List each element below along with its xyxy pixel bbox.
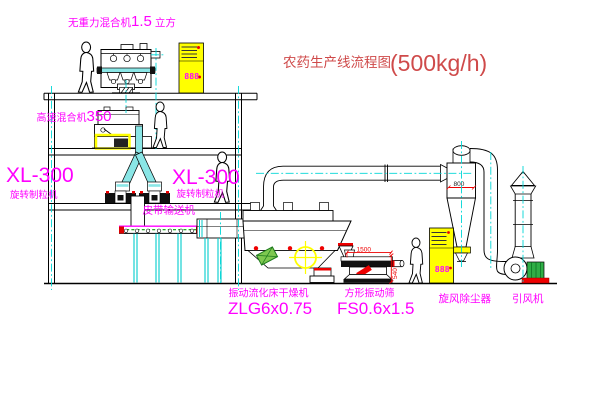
vibrating-sieve: 1500 540: [341, 247, 404, 284]
fan-suction-pipe: [470, 149, 510, 275]
sieve-model: FS0.6x1.5: [337, 299, 415, 318]
mixer2-motor: [114, 139, 128, 148]
page-title-capacity: (500kg/h): [390, 50, 487, 76]
belt-conveyor: [119, 226, 201, 282]
gravity-free-mixer: [97, 44, 160, 94]
conveyor-legs: [134, 234, 181, 283]
granulator-center-name: 旋转制粒机: [177, 188, 225, 200]
cabinet-indicator-light: [197, 46, 200, 49]
dryer-label: 振动流化床干燥机: [229, 287, 309, 300]
control-cabinet-dryer: 888: [430, 228, 454, 283]
induced-draft-fan: [504, 257, 549, 283]
control-cabinet-top: 888: [179, 43, 204, 93]
top-slab: [44, 93, 257, 100]
sieve-label: 方形振动筛: [345, 287, 395, 300]
page-title: 农药生产线流程图: [283, 55, 391, 70]
fan-base: [522, 278, 549, 283]
diagram-canvas: 888: [0, 0, 600, 403]
cabinet-display: 888: [435, 265, 450, 274]
sieve-height-text: 540: [392, 268, 399, 279]
cabinet-display: 888: [185, 72, 200, 81]
granulator-left-name: 旋转制粒机: [10, 189, 58, 201]
second-floor-slab: [48, 149, 242, 156]
mixer2-label: 高速混合机350: [37, 108, 112, 125]
conveyor-label: 皮带输送机: [143, 204, 196, 217]
fan-label: 引风机: [512, 292, 544, 305]
person-second-floor: [153, 102, 167, 148]
person-ground-floor: [409, 238, 423, 283]
dryer-model: ZLG6x0.75: [228, 299, 312, 318]
fan-motor: [527, 262, 544, 279]
svg-text:800: 800: [454, 181, 465, 188]
cabinet-indicator-light: [447, 231, 450, 234]
cyclone-label: 旋风除尘器: [439, 292, 492, 305]
granulator-left-model: XL-300: [6, 164, 74, 187]
sieve-length-text: 1500: [357, 247, 372, 254]
granulator-center-model: XL-300: [172, 166, 240, 189]
person-top-floor: [78, 42, 93, 92]
mixer1-label: 无重力混合机1.5立方: [68, 13, 176, 30]
